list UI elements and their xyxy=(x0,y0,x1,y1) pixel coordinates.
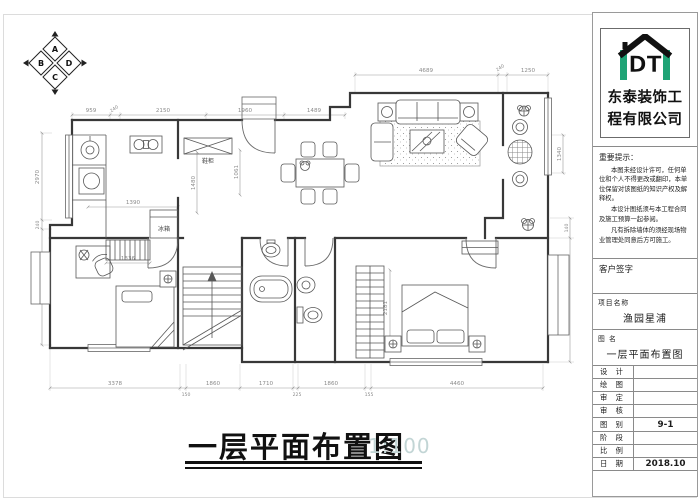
balcony-chair-bottom xyxy=(513,172,528,187)
coffee-table xyxy=(410,130,444,153)
window-balcony-right xyxy=(545,98,552,175)
drawing-name-label: 图 名 xyxy=(598,333,692,343)
row-reviewer: 审 核 xyxy=(593,405,697,418)
window-kitchen-left xyxy=(66,135,73,218)
svg-text:150: 150 xyxy=(182,392,191,398)
sofa-three-seat xyxy=(396,100,460,124)
compass-tip-east xyxy=(82,60,88,67)
svg-text:3378: 3378 xyxy=(108,381,123,387)
svg-text:959: 959 xyxy=(86,108,97,114)
compass-tip-west xyxy=(23,60,29,67)
nightstand-master-left xyxy=(385,336,401,352)
sofa-chaise xyxy=(371,123,393,161)
svg-text:140: 140 xyxy=(564,224,570,233)
shoe-cabinet: 鞋柜 xyxy=(184,138,232,165)
notice-paragraph-3: 凡有拆除墙体的须经现场物业管理处同意后方可施工。 xyxy=(599,226,691,245)
bay-window-bedroom1 xyxy=(31,252,50,304)
svg-text:4689: 4689 xyxy=(419,68,434,74)
stove xyxy=(130,136,162,153)
drawing-name-value: 一层平面布置图 xyxy=(598,346,692,361)
master-door xyxy=(466,238,496,268)
compass-rose: A D C B xyxy=(23,31,87,95)
fridge: 冰箱 xyxy=(150,210,178,238)
bath2-sink xyxy=(297,277,315,293)
wardrobe-master xyxy=(356,266,384,358)
client-signature-label: 客户签字 xyxy=(599,265,633,275)
company-logo-box: DT 东泰装饰工 程有限公司 xyxy=(600,28,690,138)
notice-paragraph-2: 本设计图纸须与本工程合同及施工预算一起参阅。 xyxy=(599,205,691,224)
title-block: DT 东泰装饰工 程有限公司 重要提示： 本图未经设计许可，任何单位和个人不得更… xyxy=(592,12,698,497)
row-date: 日 期 2018.10 xyxy=(593,458,697,471)
bathtub xyxy=(250,276,292,302)
title-block-rows: 设 计 绘 图 审 定 审 核 图 别 9-1 阶 段 xyxy=(593,365,697,472)
row-designer: 设 计 xyxy=(593,366,697,379)
drawing-name-cell: 图 名 一层平面布置图 xyxy=(593,329,697,365)
balcony-chair-top xyxy=(513,120,528,135)
compass-tip-south xyxy=(52,90,59,96)
stairs xyxy=(183,267,242,350)
shoe-cabinet-label: 鞋柜 xyxy=(202,157,214,165)
svg-text:1336: 1336 xyxy=(121,256,136,262)
compass-letter-c: C xyxy=(52,73,58,82)
drawing-scale: 1:100 xyxy=(368,434,431,458)
drawing-sheet: A D C B 959 xyxy=(0,0,700,501)
client-signature-cell[interactable]: 客户签字 xyxy=(593,258,697,293)
dining-chairs xyxy=(281,142,359,204)
compass-letter-a: A xyxy=(52,45,59,54)
windows xyxy=(31,97,569,366)
svg-text:240: 240 xyxy=(109,104,120,114)
dining-plant xyxy=(300,161,310,171)
notice-section: 重要提示： 本图未经设计许可，任何单位和个人不得更改或翻印，本单位保留对该图纸的… xyxy=(593,146,697,258)
compass-letter-b: B xyxy=(38,59,44,68)
nightstand-master-right xyxy=(469,336,485,352)
kitchen-counter xyxy=(72,135,106,238)
notice-heading: 重要提示： xyxy=(599,152,691,163)
svg-text:1860: 1860 xyxy=(324,381,339,387)
bath1-door xyxy=(260,238,288,266)
bath1-sink xyxy=(262,240,280,257)
svg-text:225: 225 xyxy=(293,392,302,398)
svg-text:1250: 1250 xyxy=(521,68,536,74)
kitchen-sink xyxy=(81,136,99,159)
desk-chair xyxy=(91,252,114,277)
wall-balcony xyxy=(485,93,503,238)
bay-window-master xyxy=(548,255,569,335)
side-table-left xyxy=(378,103,396,121)
svg-text:1710: 1710 xyxy=(259,381,274,387)
company-logo-icon: DT xyxy=(612,34,678,82)
compass-tip-north xyxy=(52,31,59,37)
row-stage: 阶 段 xyxy=(593,432,697,445)
svg-text:4460: 4460 xyxy=(450,381,465,387)
desk xyxy=(76,246,110,278)
washing-machine xyxy=(79,168,104,194)
svg-text:2970: 2970 xyxy=(35,169,41,184)
company-name-line1: 东泰装饰工 xyxy=(601,89,689,108)
notice-paragraph-1: 本图未经设计许可，任何单位和个人不得更改或翻印，本单位保留对该图纸的知识产权及解… xyxy=(599,166,691,204)
row-approver: 审 定 xyxy=(593,392,697,405)
fridge-label: 冰箱 xyxy=(158,225,170,233)
bed-master xyxy=(402,285,468,346)
wall-bath xyxy=(295,238,335,362)
bath2-door xyxy=(305,238,333,266)
plant-corner xyxy=(522,219,535,231)
title-underline-2 xyxy=(185,467,422,469)
compass-letter-d: D xyxy=(66,59,73,68)
toilet xyxy=(297,307,322,323)
master-closet xyxy=(462,241,498,254)
furniture: 冰箱 鞋柜 xyxy=(72,100,535,358)
title-underline-1 xyxy=(185,461,422,464)
svg-text:1480: 1480 xyxy=(191,175,197,190)
svg-text:1489: 1489 xyxy=(307,108,322,114)
svg-text:1960: 1960 xyxy=(238,108,253,114)
svg-text:2150: 2150 xyxy=(156,108,171,114)
project-name-label: 项目名称 xyxy=(598,297,692,307)
balcony-table xyxy=(508,140,532,164)
nightstand-bedroom1 xyxy=(160,271,176,287)
side-table-right xyxy=(460,103,478,121)
svg-text:240: 240 xyxy=(495,63,506,73)
svg-text:1061: 1061 xyxy=(234,164,240,179)
plant-balcony xyxy=(518,106,531,117)
bedroom1-door xyxy=(148,238,178,268)
svg-text:155: 155 xyxy=(365,392,374,398)
dining-table xyxy=(296,159,344,187)
svg-text:240: 240 xyxy=(35,221,41,230)
svg-text:1860: 1860 xyxy=(206,381,221,387)
company-name-line2: 程有限公司 xyxy=(601,111,689,130)
logo-letters: DT xyxy=(628,53,661,78)
project-name-value: 渔园星浦 xyxy=(598,310,692,325)
svg-text:1390: 1390 xyxy=(126,200,141,206)
window-master-bottom xyxy=(390,359,482,366)
row-drawing-no: 图 别 9-1 xyxy=(593,418,697,431)
entry-door xyxy=(242,120,275,153)
svg-text:1340: 1340 xyxy=(557,146,563,161)
row-draftsman: 绘 图 xyxy=(593,379,697,392)
bed-bedroom1 xyxy=(116,286,174,347)
project-name-cell: 项目名称 渔园星浦 xyxy=(593,293,697,329)
row-scale: 比 例 xyxy=(593,445,697,458)
